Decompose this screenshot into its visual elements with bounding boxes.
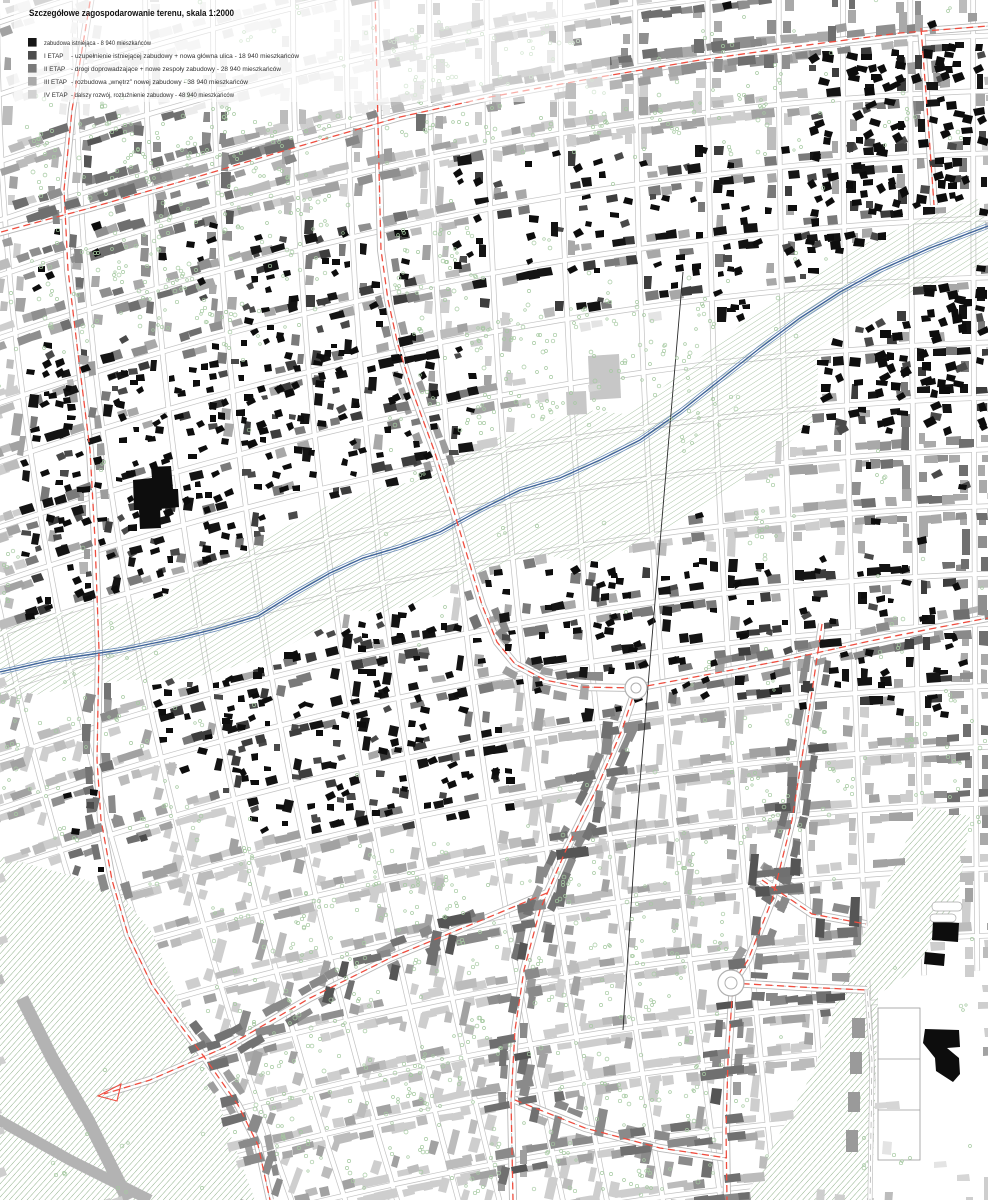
- svg-text:- uzupełnienie istniejącej zab: - uzupełnienie istniejącej zabudowy + no…: [71, 53, 299, 60]
- svg-text:- drogi doprowadzające + nowe: - drogi doprowadzające + nowe zespoły za…: [71, 66, 281, 73]
- svg-text:- dalszy rozwój, rozluźnienie: - dalszy rozwój, rozluźnienie zabudowy -…: [71, 92, 234, 99]
- svg-text:Szczegółowe zagospodarowanie t: Szczegółowe zagospodarowanie terenu, ska…: [29, 8, 234, 18]
- svg-text:- rozbudowa „wnętrz” nowej zab: - rozbudowa „wnętrz” nowej zabudowy - 38…: [71, 79, 248, 86]
- svg-text:III ETAP: III ETAP: [44, 79, 67, 86]
- svg-text:I ETAP: I ETAP: [44, 53, 63, 60]
- svg-text:zabudowa istniejąca - 8 940 mi: zabudowa istniejąca - 8 940 mieszkańców: [44, 40, 151, 47]
- svg-text:II ETAP: II ETAP: [44, 66, 65, 73]
- svg-text:IV ETAP: IV ETAP: [44, 92, 68, 99]
